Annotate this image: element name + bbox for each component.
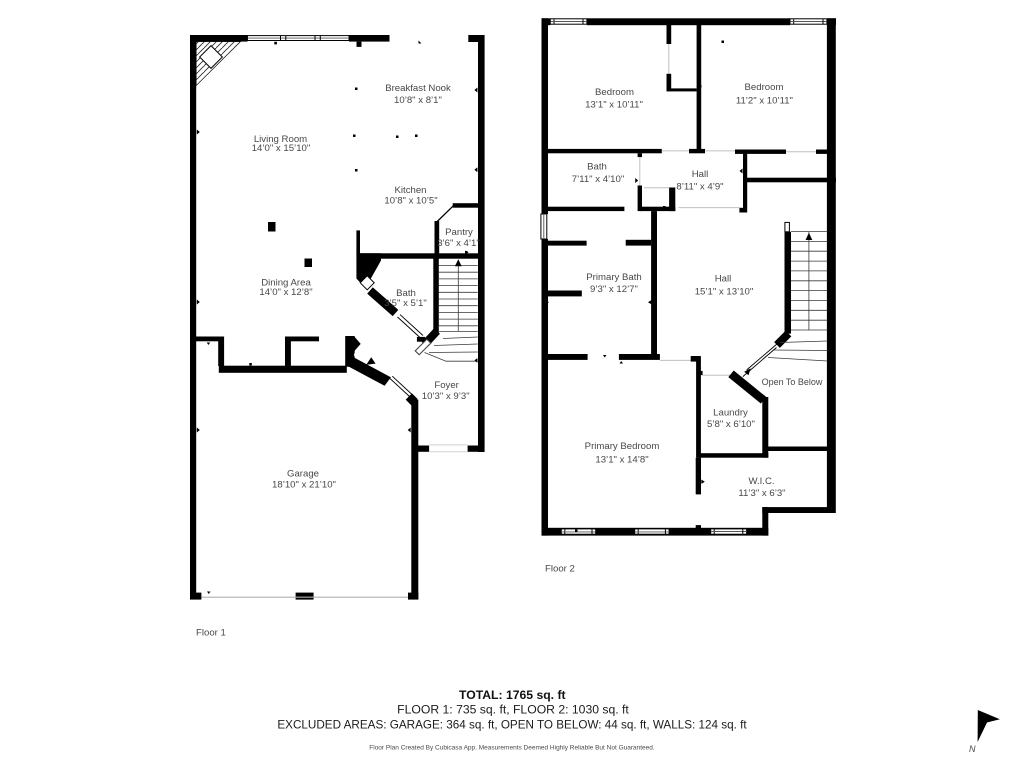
svg-text:18’10" x 21’10": 18’10" x 21’10" xyxy=(272,479,336,490)
svg-text:FLOOR 1: 735 sq. ft, FLOOR 2:: FLOOR 1: 735 sq. ft, FLOOR 2: 1030 sq. f… xyxy=(397,703,629,717)
svg-text:14’0" x 15’10": 14’0" x 15’10" xyxy=(252,143,311,154)
svg-text:Pantry: Pantry xyxy=(445,227,473,238)
svg-text:Laundry: Laundry xyxy=(713,407,748,418)
svg-text:Bedroom: Bedroom xyxy=(595,87,634,98)
svg-text:9’3" x 12’7": 9’3" x 12’7" xyxy=(590,284,638,295)
svg-text:10’3" x 9’3": 10’3" x 9’3" xyxy=(422,391,470,402)
svg-text:N: N xyxy=(969,744,976,754)
svg-text:13’1" x 10’11": 13’1" x 10’11" xyxy=(585,100,643,111)
svg-text:Primary Bath: Primary Bath xyxy=(586,272,641,283)
svg-text:14’0" x 12’8": 14’0" x 12’8" xyxy=(259,287,312,298)
svg-text:11’3" x 6’3": 11’3" x 6’3" xyxy=(738,488,785,499)
svg-text:8’11" x 4’9": 8’11" x 4’9" xyxy=(676,182,723,193)
svg-text:Bedroom: Bedroom xyxy=(745,82,784,93)
svg-text:Kitchen: Kitchen xyxy=(395,185,427,196)
svg-text:W.I.C.: W.I.C. xyxy=(748,476,774,487)
svg-text:Hall: Hall xyxy=(692,169,709,180)
svg-text:Floor Plan Created By Cubicasa: Floor Plan Created By Cubicasa App. Meas… xyxy=(369,745,655,752)
svg-text:3’5" x 5’1": 3’5" x 5’1" xyxy=(384,298,427,309)
svg-text:10’8" x 8’1": 10’8" x 8’1" xyxy=(394,95,442,106)
svg-text:7’11" x 4’10": 7’11" x 4’10" xyxy=(572,174,625,185)
svg-text:Bath: Bath xyxy=(587,162,607,173)
svg-text:Foyer: Foyer xyxy=(434,380,459,391)
svg-text:15’1" x 13’10": 15’1" x 13’10" xyxy=(695,286,754,297)
svg-text:Breakfast Nook: Breakfast Nook xyxy=(385,83,451,94)
svg-text:Garage: Garage xyxy=(287,468,319,479)
svg-text:13’1" x 14’8": 13’1" x 14’8" xyxy=(595,454,648,465)
svg-text:Primary Bedroom: Primary Bedroom xyxy=(585,441,660,452)
svg-text:3’6" x 4’1": 3’6" x 4’1" xyxy=(437,238,480,249)
svg-text:EXCLUDED AREAS: GARAGE: 364 sq: EXCLUDED AREAS: GARAGE: 364 sq. ft, OPEN… xyxy=(277,718,747,731)
svg-text:Floor 1: Floor 1 xyxy=(196,628,226,639)
svg-text:TOTAL: 1765 sq. ft: TOTAL: 1765 sq. ft xyxy=(459,688,566,702)
svg-text:Hall: Hall xyxy=(715,273,732,284)
svg-text:10’8" x 10’5": 10’8" x 10’5" xyxy=(384,196,437,207)
svg-text:Floor 2: Floor 2 xyxy=(545,564,575,575)
svg-text:Open To Below: Open To Below xyxy=(762,377,823,387)
svg-text:11’2" x 10’11": 11’2" x 10’11" xyxy=(736,96,793,107)
svg-text:5’8" x 6’10": 5’8" x 6’10" xyxy=(707,419,755,430)
